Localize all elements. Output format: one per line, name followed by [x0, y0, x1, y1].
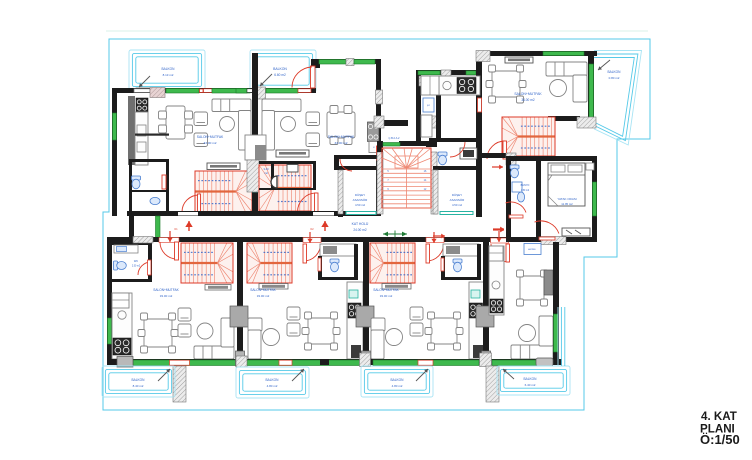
svg-text:DÜŞEY: DÜŞEY	[452, 193, 462, 197]
svg-text:BALKON: BALKON	[132, 378, 146, 382]
svg-text:SALON+MUTFAK: SALON+MUTFAK	[373, 288, 399, 292]
svg-text:6.40 m2: 6.40 m2	[525, 383, 536, 387]
svg-text:ASANSÖR: ASANSÖR	[450, 198, 466, 202]
svg-text:BANYO: BANYO	[521, 184, 530, 187]
svg-text:8.13 m2: 8.13 m2	[163, 73, 174, 77]
svg-text:SALON+MUTFAK: SALON+MUTFAK	[514, 92, 542, 96]
svg-text:m2: m2	[264, 171, 268, 175]
svg-text:BALKON: BALKON	[608, 70, 622, 74]
svg-text:DÜŞEY: DÜŞEY	[355, 193, 365, 197]
svg-text:SALON+MUTFAK: SALON+MUTFAK	[197, 135, 224, 139]
svg-text:6.60 m2: 6.60 m2	[274, 73, 286, 77]
svg-text:SALON+MUTFAK: SALON+MUTFAK	[250, 288, 276, 292]
svg-text:4.80 m2: 4.80 m2	[267, 384, 278, 388]
svg-text:11.95 m2: 11.95 m2	[561, 202, 573, 206]
svg-text:Ç.B.2 A.2: Ç.B.2 A.2	[389, 136, 401, 140]
svg-text:Ö:1/50: Ö:1/50	[700, 432, 740, 447]
svg-text:WC: WC	[134, 259, 138, 263]
svg-text:YATAK ODASI: YATAK ODASI	[557, 197, 577, 201]
svg-text:4.50 m2: 4.50 m2	[355, 203, 366, 207]
svg-text:SALON+MUTFAK: SALON+MUTFAK	[153, 288, 179, 292]
svg-text:4. KAT: 4. KAT	[701, 410, 737, 423]
svg-text:ŞÖ: ŞÖ	[427, 104, 430, 107]
svg-text:34.00 m2: 34.00 m2	[521, 98, 535, 102]
svg-text:KAT HOLÜ: KAT HOLÜ	[352, 222, 369, 226]
svg-text:8.40 m2: 8.40 m2	[133, 384, 144, 388]
svg-text:4.80 m2: 4.80 m2	[392, 384, 403, 388]
svg-text:SALON+MUTFAK: SALON+MUTFAK	[328, 135, 355, 139]
svg-text:33.00 m2: 33.00 m2	[335, 141, 348, 145]
svg-text:3.40: 3.40	[263, 167, 269, 171]
svg-text:2.50 m2: 2.50 m2	[132, 266, 141, 268]
svg-text:BALKON: BALKON	[391, 378, 405, 382]
svg-text:24.00 m2: 24.00 m2	[353, 228, 367, 232]
svg-text:4.50 m2: 4.50 m2	[521, 190, 530, 192]
svg-text:33.00 m2: 33.00 m2	[257, 294, 270, 298]
svg-text:33.00 m2: 33.00 m2	[204, 141, 217, 145]
svg-text:ASANSÖR: ASANSÖR	[353, 198, 369, 202]
svg-text:BALKON: BALKON	[162, 67, 176, 71]
svg-text:ANTRE: ANTRE	[528, 248, 536, 251]
svg-text:33.00 m2: 33.00 m2	[160, 294, 173, 298]
svg-text:4.50 m2: 4.50 m2	[452, 203, 463, 207]
svg-text:0.80 m2: 0.80 m2	[609, 76, 620, 80]
svg-text:BALKON: BALKON	[524, 377, 538, 381]
svg-text:BALKON: BALKON	[273, 67, 287, 71]
svg-text:BALKON: BALKON	[266, 378, 280, 382]
svg-text:33.00 m2: 33.00 m2	[380, 294, 393, 298]
